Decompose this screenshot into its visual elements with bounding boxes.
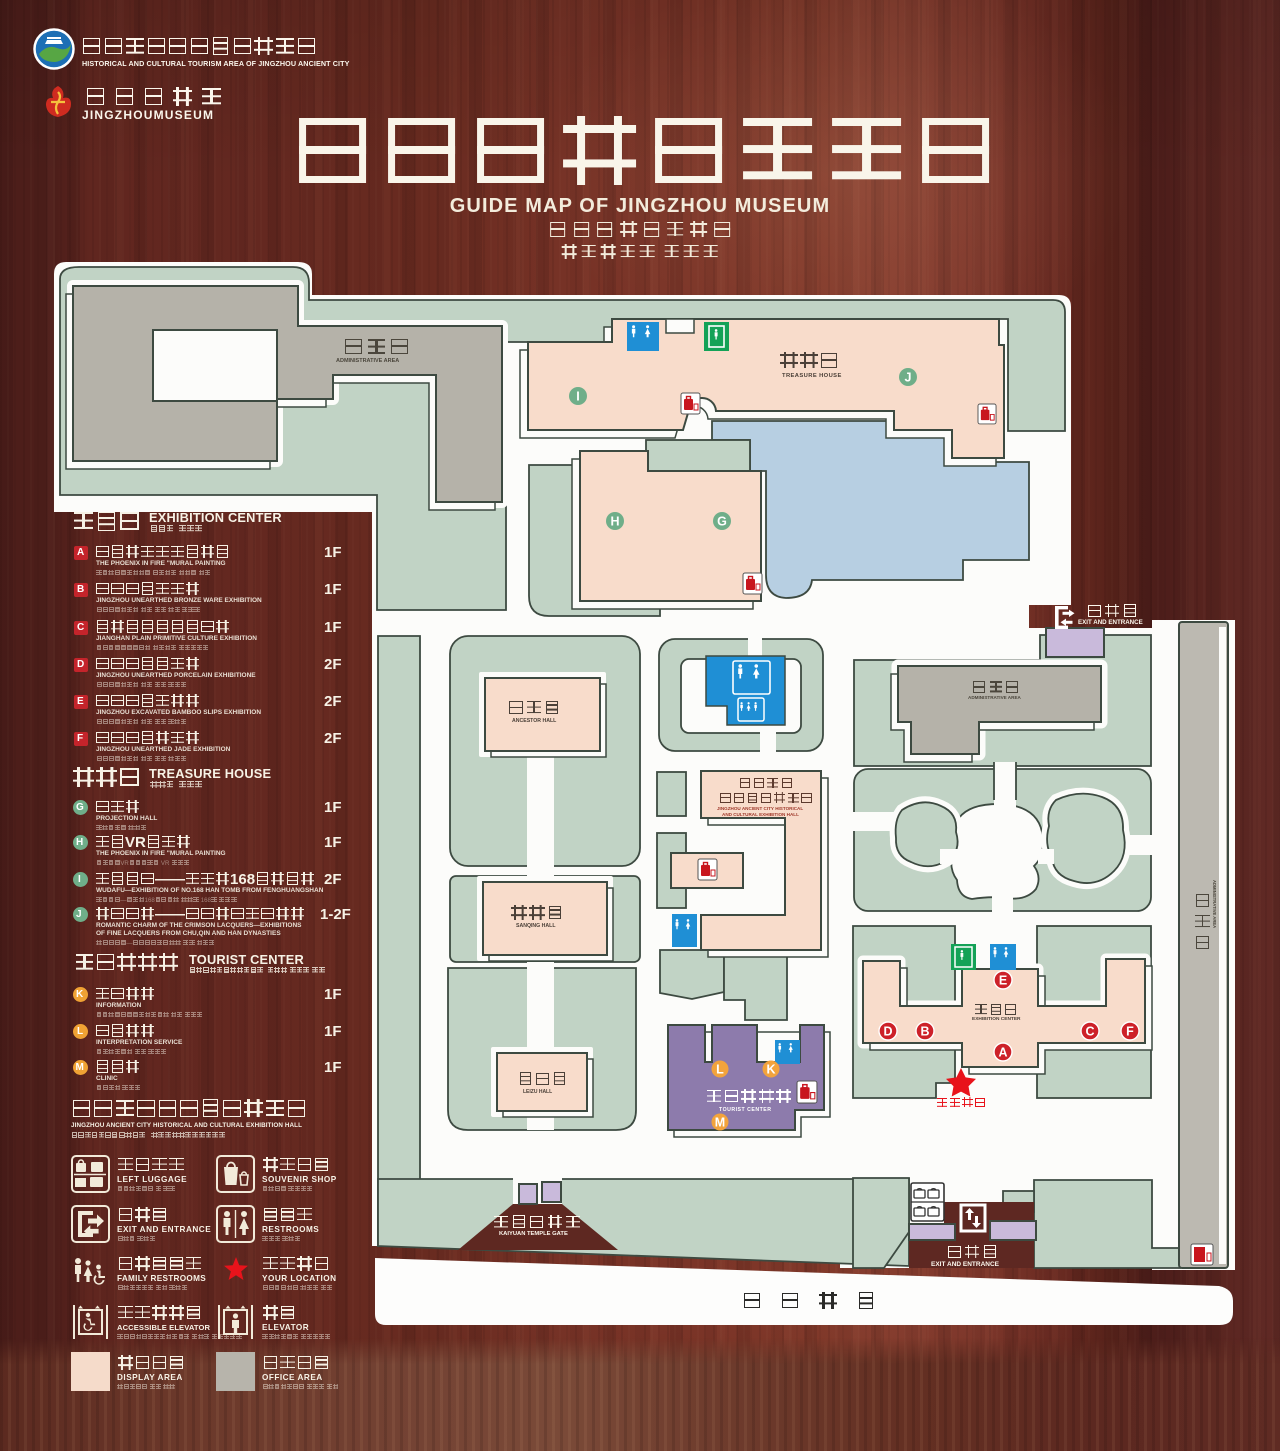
svg-text:A: A [998,1046,1007,1060]
svg-text:E: E [999,974,1007,988]
svg-text:B: B [920,1025,929,1039]
svg-text:L: L [716,1063,724,1077]
svg-text:G: G [717,515,727,529]
svg-text:J: J [905,371,912,385]
svg-text:F: F [1126,1025,1134,1039]
svg-text:C: C [1085,1025,1094,1039]
svg-text:K: K [766,1063,775,1077]
svg-text:M: M [715,1116,725,1130]
svg-text:H: H [610,515,619,529]
svg-text:D: D [883,1025,892,1039]
svg-text:I: I [576,390,579,404]
